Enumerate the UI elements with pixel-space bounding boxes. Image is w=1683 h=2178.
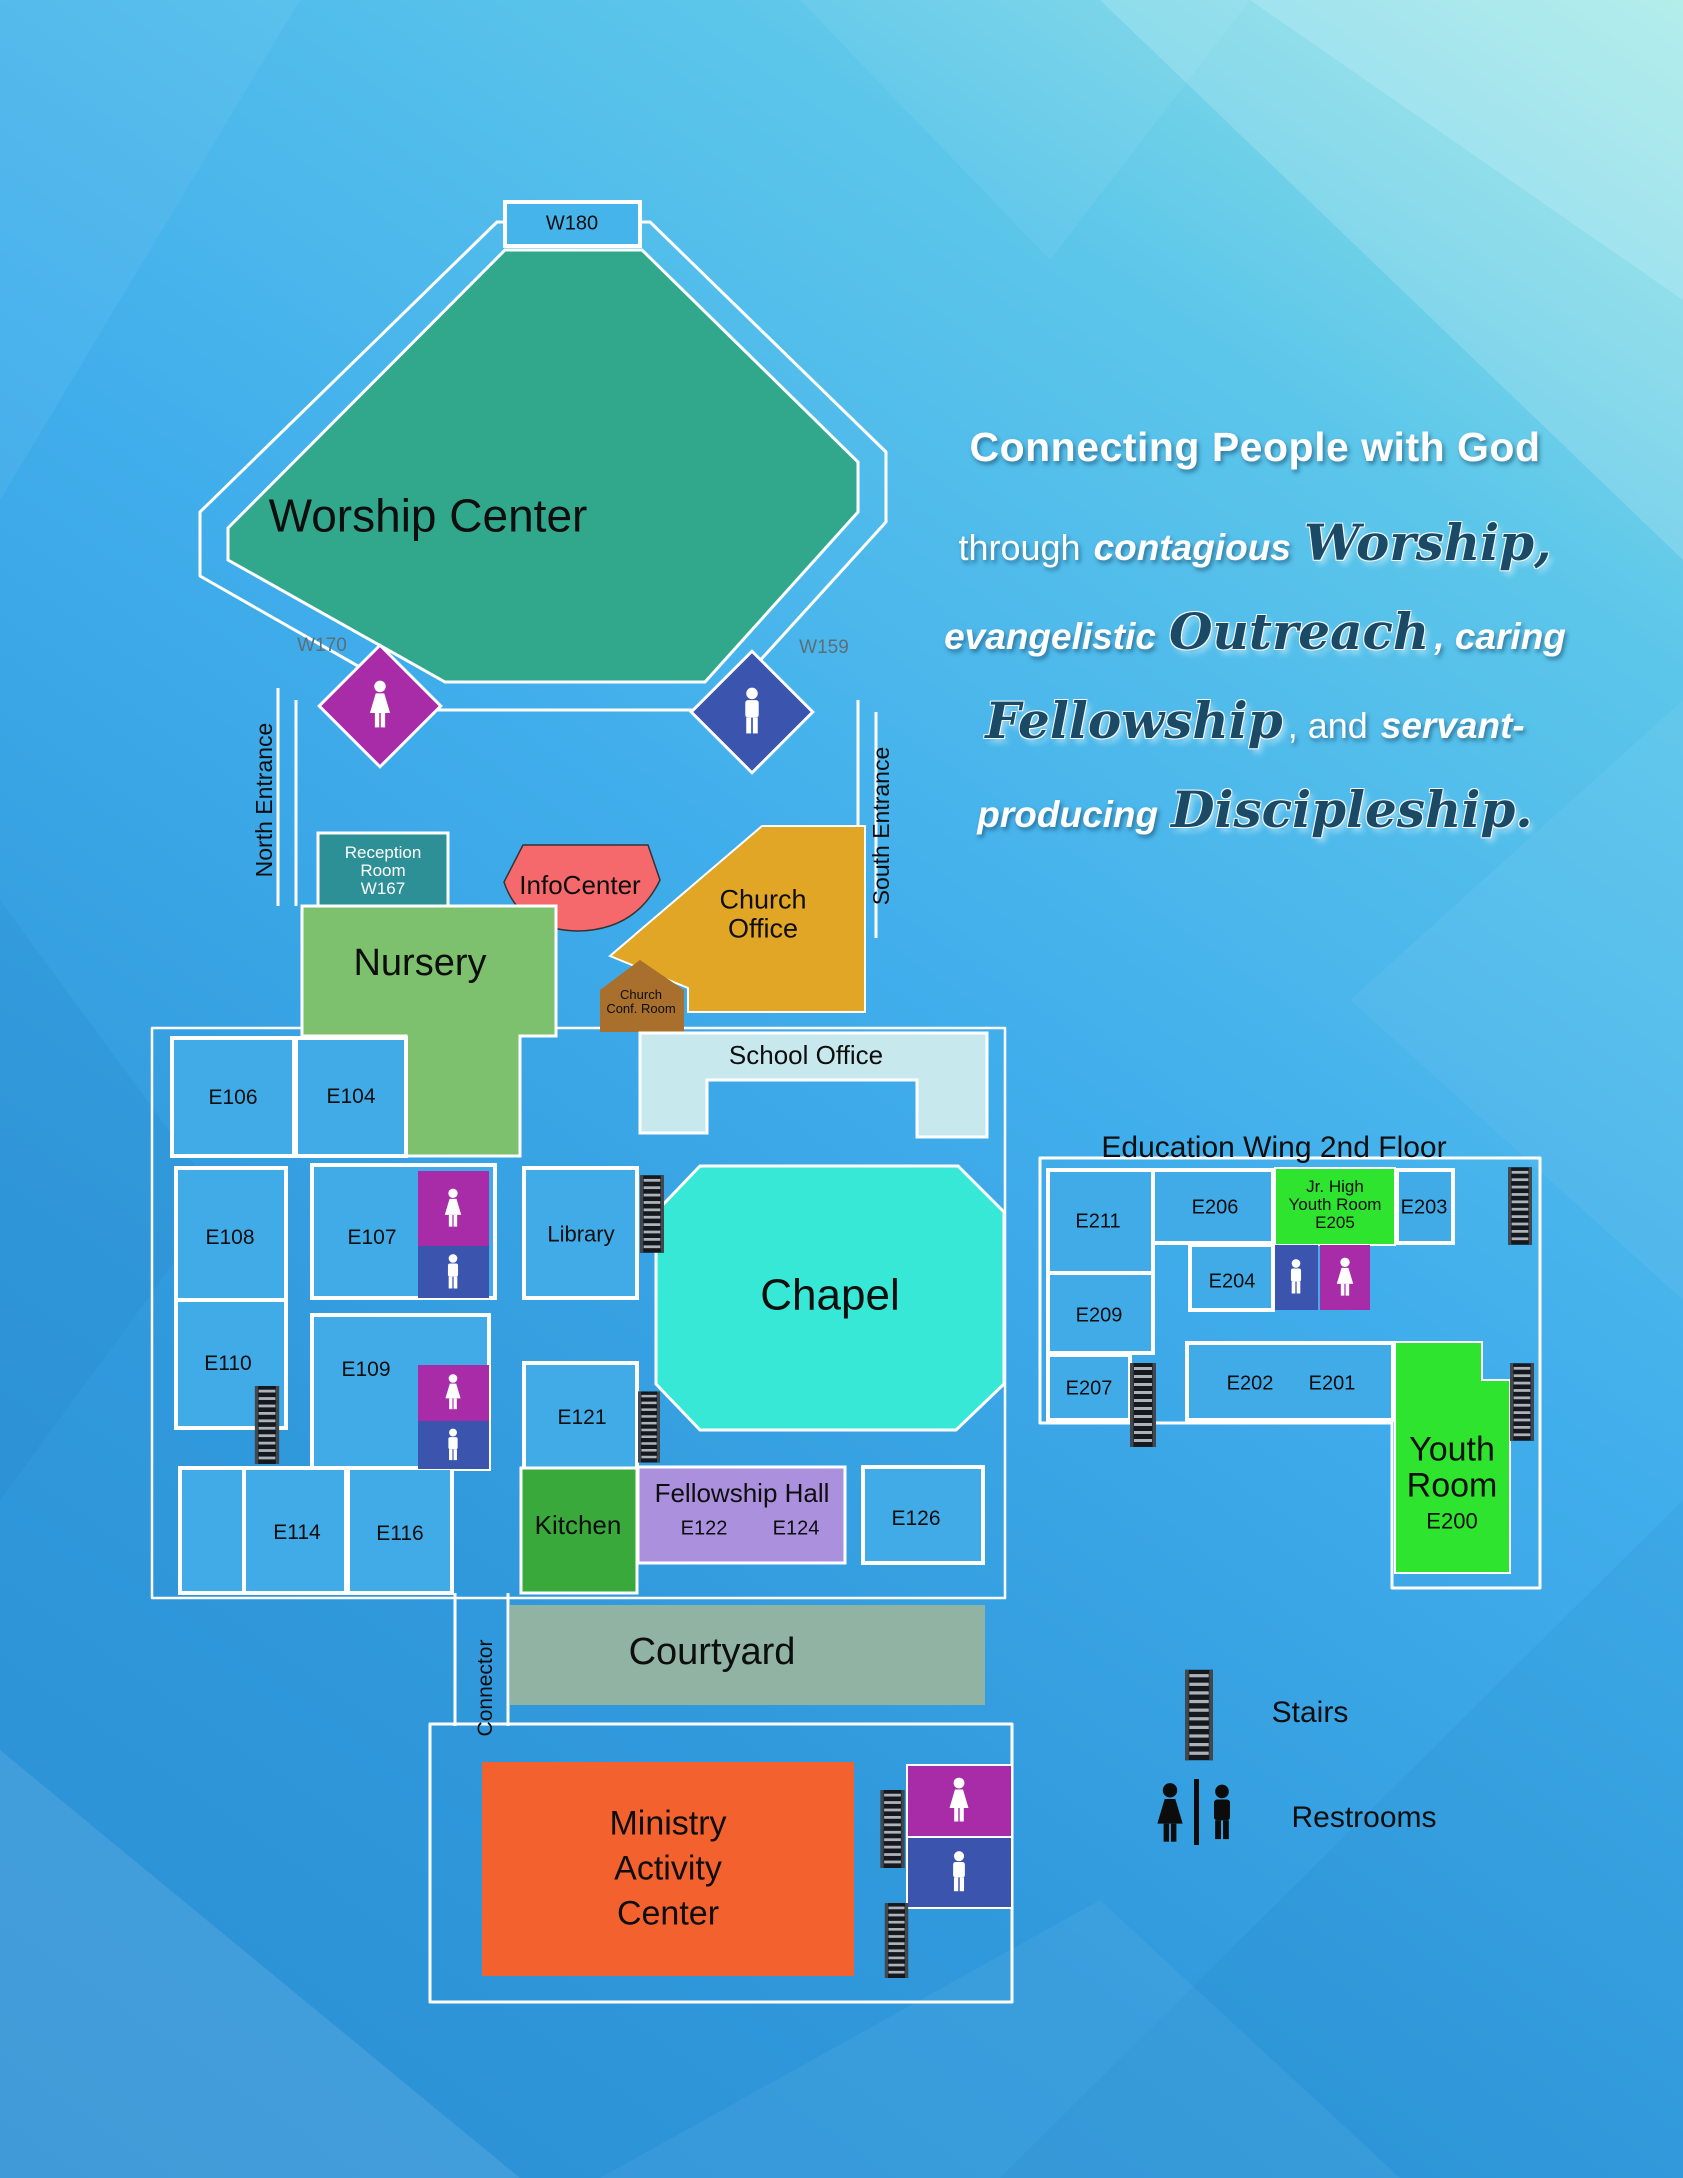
tagline-line5: producing Discipleship. [910, 780, 1600, 869]
tagline-text-script: Worship, [1304, 513, 1552, 572]
youth-room-line1: Youth [1407, 1431, 1498, 1467]
mac-line3: Center [609, 1891, 726, 1936]
restrooms-legend-label: Restrooms [1291, 1802, 1436, 1834]
courtyard-label: Courtyard [629, 1632, 796, 1672]
e126-label: E126 [891, 1508, 940, 1530]
youth-room-line2: Room [1407, 1467, 1498, 1503]
youth-room-label: Youth Room E200 [1407, 1431, 1498, 1532]
e206-label: E206 [1192, 1197, 1239, 1218]
church-campus-map: W180 Worship Center W170 W159 North Entr… [0, 0, 1683, 2178]
stairs-legend-label: Stairs [1272, 1697, 1349, 1729]
e211-label: E211 [1075, 1211, 1120, 1232]
church-office-line1: Church [719, 885, 806, 914]
e204-label: E204 [1209, 1271, 1256, 1292]
church-conf-room-label: Church Conf. Room [606, 988, 675, 1016]
church-conf-line2: Conf. Room [606, 1002, 675, 1016]
e109-label: E109 [341, 1359, 390, 1381]
tagline-text-bold: servant- [1381, 705, 1525, 747]
youth-room-code: E200 [1407, 1509, 1498, 1532]
reception-line2: Room [345, 862, 422, 880]
jr-high-youth-room-label: Jr. High Youth Room E205 [1289, 1178, 1382, 1232]
tagline-line1: Connecting People with God [910, 424, 1600, 513]
worship-center-label: Worship Center [269, 492, 588, 541]
labels-layer: W180 Worship Center W170 W159 North Entr… [0, 0, 1683, 2178]
tagline-text: , and [1288, 705, 1368, 747]
e108-label: E108 [205, 1227, 254, 1249]
ministry-activity-center-label: Ministry Activity Center [609, 1802, 726, 1937]
infocenter-label: InfoCenter [519, 872, 640, 900]
w159-label: W159 [799, 638, 849, 658]
e203-label: E203 [1401, 1197, 1448, 1218]
education-wing-title: Education Wing 2nd Floor [1101, 1132, 1446, 1164]
school-office-label: School Office [729, 1042, 883, 1070]
tagline-line3: evangelistic Outreach , caring [910, 602, 1600, 691]
jr-high-line3: E205 [1289, 1214, 1382, 1232]
chapel-label: Chapel [760, 1273, 899, 1320]
tagline-text-bold: , caring [1434, 616, 1566, 658]
mac-line1: Ministry [609, 1802, 726, 1847]
nursery-label: Nursery [353, 943, 486, 983]
e124-label: E124 [773, 1518, 820, 1539]
jr-high-line2: Youth Room [1289, 1196, 1382, 1214]
church-office-label: Church Office [719, 885, 806, 942]
church-office-line2: Office [719, 914, 806, 943]
mac-line2: Activity [609, 1847, 726, 1892]
mission-statement: Connecting People with God through conta… [910, 424, 1600, 869]
w170-label: W170 [297, 636, 347, 656]
e104-label: E104 [326, 1086, 375, 1108]
church-conf-line1: Church [606, 988, 675, 1002]
tagline-text-script: Fellowship [985, 691, 1282, 750]
e202-label: E202 [1227, 1373, 1274, 1394]
w180-label: W180 [546, 213, 598, 234]
tagline-text-bold: evangelistic [944, 616, 1156, 658]
kitchen-label: Kitchen [535, 1512, 622, 1540]
reception-room-label: Reception Room W167 [345, 844, 422, 898]
tagline-text-script: Outreach [1169, 602, 1429, 661]
e116-label: E116 [376, 1523, 424, 1545]
tagline-text: Connecting People with God [969, 424, 1540, 471]
e106-label: E106 [208, 1087, 257, 1109]
e121-label: E121 [557, 1407, 606, 1429]
e110-label: E110 [204, 1353, 252, 1375]
e209-label: E209 [1076, 1305, 1123, 1326]
tagline-text-script: Discipleship. [1171, 780, 1533, 839]
tagline-text-bold: producing [977, 794, 1158, 836]
jr-high-line1: Jr. High [1289, 1178, 1382, 1196]
library-label: Library [547, 1222, 614, 1245]
reception-line1: Reception [345, 844, 422, 862]
e114-label: E114 [273, 1522, 321, 1544]
e122-label: E122 [681, 1518, 728, 1539]
tagline-line4: Fellowship , and servant- [910, 691, 1600, 780]
connector-label: Connector [475, 1640, 497, 1737]
e201-label: E201 [1309, 1373, 1356, 1394]
north-entrance-label: North Entrance [252, 723, 276, 878]
reception-line3: W167 [345, 880, 422, 898]
tagline-line2: through contagious Worship, [910, 513, 1600, 602]
e107-label: E107 [347, 1227, 396, 1249]
tagline-text-bold: contagious [1094, 527, 1291, 569]
tagline-text: through [958, 527, 1080, 569]
fellowship-hall-label: Fellowship Hall [655, 1480, 830, 1508]
south-entrance-label: South Entrance [869, 747, 893, 906]
e207-label: E207 [1066, 1378, 1113, 1399]
